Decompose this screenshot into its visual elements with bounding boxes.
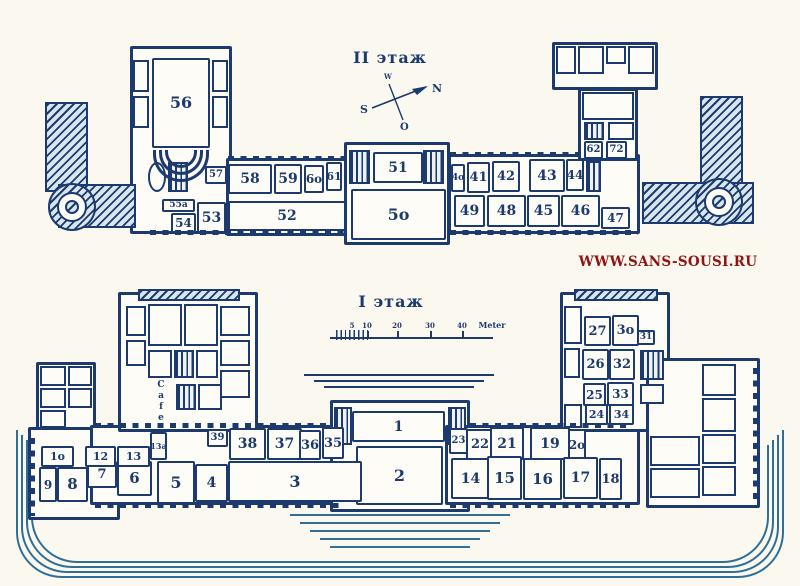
- room-2: 2: [356, 446, 443, 505]
- room-47: 47: [601, 207, 630, 229]
- upper-left-tower-cell: [133, 60, 149, 92]
- lower-right-tower-parapet: [574, 289, 658, 301]
- room-31: 31: [637, 330, 655, 345]
- lower-west-wing-cell: [68, 366, 92, 386]
- room-52: 52: [228, 201, 346, 231]
- lower-right-pavilion-cell: [650, 436, 700, 466]
- lower-right-pavilion-cell: [650, 468, 700, 498]
- room-49: 49: [454, 195, 485, 227]
- lower-west-facade-ticks: [30, 438, 35, 516]
- room-5: 5: [157, 461, 195, 504]
- lower-right-tower-cell: [640, 384, 664, 404]
- room-15: 15: [487, 456, 522, 500]
- room-26: 26: [582, 349, 609, 380]
- upper-left-tower-cell: [212, 60, 228, 92]
- lower-south-facade-ticks: [450, 503, 630, 508]
- room-43: 43: [529, 159, 565, 192]
- watermark: WWW.SANS-SOUSI.RU: [579, 254, 758, 270]
- upper-right-tower-cell: [606, 46, 626, 64]
- room-14: 14: [451, 458, 490, 499]
- court-step: [324, 386, 474, 388]
- lower-left-tower-cell: [184, 304, 218, 346]
- upper-north-facade-ticks: [228, 156, 346, 161]
- lower-west-wing-cell: [40, 410, 66, 428]
- lower-left-tower-stair: [176, 384, 196, 410]
- upper-right-tower-stair: [584, 122, 604, 140]
- upper-center-stair-west: [349, 150, 370, 184]
- label-scale-20: 20: [392, 321, 402, 330]
- room-51: 51: [373, 152, 423, 183]
- room-53: 53: [197, 202, 226, 233]
- room-32: 32: [609, 349, 635, 380]
- room-13a: 13a: [150, 432, 167, 460]
- lower-floor-title: I этаж: [358, 292, 423, 311]
- upper-floor-title: II этаж: [353, 48, 427, 67]
- lower-left-tower-cell: [126, 306, 146, 336]
- palace-floor-plan-scan: II этаж N S O W 565758: [0, 0, 800, 586]
- upper-right-tower-cell: [608, 122, 634, 140]
- grand-stair-step: [330, 546, 470, 548]
- room-55a: 55a: [162, 199, 195, 212]
- upper-left-rotunda-core: [65, 200, 79, 214]
- upper-right-tower-cell: [578, 46, 604, 74]
- upper-center-stair-east: [423, 150, 444, 184]
- room-17: 17: [563, 457, 598, 499]
- room-41: 41: [467, 162, 490, 193]
- lower-court-facade-ticks: [95, 423, 330, 428]
- upper-south-facade-ticks: [150, 230, 344, 235]
- room-59: 59: [274, 164, 302, 194]
- room-18: 18: [599, 458, 622, 500]
- scale-bar-tick: [430, 331, 432, 339]
- room-16: 16: [523, 458, 562, 500]
- scale-bar-tick: [397, 331, 399, 339]
- room-9: 9: [39, 467, 57, 502]
- compass-south-label: S: [360, 103, 368, 116]
- upper-left-tower-cell: [133, 96, 149, 128]
- room-20: 2o: [568, 429, 586, 460]
- room-3: 3: [228, 461, 362, 502]
- lower-right-pavilion-cell: [702, 398, 736, 432]
- room-72: 72: [606, 141, 627, 159]
- court-step: [314, 380, 484, 382]
- upper-right-colonnade-north-arm: [700, 96, 743, 186]
- lower-court-facade-ticks: [470, 423, 630, 428]
- scale-bar-tick: [367, 331, 369, 339]
- room-61: 61: [326, 162, 342, 191]
- room-57: 57: [205, 166, 227, 184]
- room-44: 44: [566, 159, 584, 191]
- room-10: 1o: [41, 446, 74, 467]
- room-38: 38: [229, 428, 266, 460]
- lower-west-wing-cell: [40, 388, 66, 408]
- room-19: 19: [530, 427, 570, 460]
- lower-left-tower-cell: [220, 306, 250, 336]
- room-56: 56: [152, 58, 210, 148]
- room-40: 4o: [451, 164, 465, 192]
- lower-south-facade-ticks: [95, 503, 345, 508]
- room-37: 37: [267, 428, 302, 460]
- scale-bar-tick: [462, 331, 464, 339]
- room-39: 39: [207, 429, 228, 447]
- grand-stair-step: [290, 514, 510, 516]
- upper-right-tower-cell: [556, 46, 576, 74]
- room-36: 36: [299, 430, 321, 460]
- room-60: 6o: [304, 165, 324, 193]
- lower-right-tower-stair: [640, 350, 664, 380]
- room-24: 24: [585, 404, 608, 425]
- upper-left-tower-cell: [212, 96, 228, 128]
- compass-arrow-icon: [412, 86, 428, 95]
- room-30: 3o: [612, 315, 639, 346]
- compass-west-label: W: [383, 72, 392, 81]
- room-62: 62: [584, 141, 603, 159]
- room-12: 12: [85, 446, 116, 467]
- compass-rose: N S O W: [350, 68, 450, 132]
- lower-west-wing-cell: [68, 388, 92, 408]
- label-scale-5: 5: [350, 321, 355, 330]
- compass-north-label: N: [432, 82, 442, 95]
- lower-left-tower-cell: [148, 304, 182, 346]
- lower-left-tower-cell: [198, 384, 222, 410]
- room-25: 25: [583, 383, 606, 406]
- room-45: 45: [527, 195, 560, 227]
- lower-left-tower-parapet: [138, 289, 240, 301]
- label-scale-10: 10: [362, 321, 372, 330]
- room-35: 35: [322, 427, 344, 459]
- compass-east-label: O: [400, 122, 409, 133]
- room-50: 5o: [351, 189, 446, 240]
- lower-west-wing-cell: [40, 366, 66, 386]
- room-42: 42: [492, 161, 520, 192]
- upper-right-tower-cell: [582, 92, 634, 120]
- lower-right-tower-cell: [564, 306, 582, 344]
- lower-right-pavilion-cell: [702, 466, 736, 496]
- scale-bar-minor-ticks: [336, 330, 369, 340]
- court-step: [304, 374, 494, 376]
- room-34: 34: [609, 404, 634, 425]
- lower-left-tower-cell: [196, 350, 218, 378]
- room-33: 33: [607, 382, 634, 406]
- label-scale-unit: Meter: [479, 320, 506, 330]
- grand-stair-step: [310, 530, 490, 532]
- grand-stair-step: [300, 522, 500, 524]
- lower-left-tower-cell: [148, 350, 172, 378]
- upper-left-colonnade-north-arm: [45, 102, 88, 192]
- cafe-label: Cafe: [156, 380, 166, 428]
- room-27: 27: [584, 316, 611, 346]
- upper-north-facade-ticks: [450, 152, 584, 157]
- lower-right-tower-cell: [564, 348, 580, 378]
- lower-east-facade-ticks: [753, 368, 758, 503]
- room-48: 48: [487, 195, 526, 227]
- grand-stair-step: [320, 538, 480, 540]
- label-scale-30: 30: [425, 321, 435, 330]
- room-4: 4: [195, 464, 228, 502]
- room-8: 8: [57, 467, 88, 502]
- lower-left-tower-cell: [220, 370, 250, 398]
- upper-south-facade-ticks: [450, 230, 638, 235]
- lower-left-tower-cell: [220, 340, 250, 366]
- label-scale-40: 40: [457, 321, 467, 330]
- room-58: 58: [228, 164, 272, 194]
- lower-right-pavilion-cell: [702, 434, 736, 464]
- room-13: 13: [117, 446, 150, 467]
- lower-left-tower-stair: [174, 350, 194, 378]
- lower-left-tower-cell: [126, 340, 146, 366]
- upper-right-stair: [586, 161, 601, 192]
- upper-right-rotunda-core: [712, 195, 726, 209]
- upper-right-tower-cell: [628, 46, 654, 74]
- room-46: 46: [561, 195, 600, 227]
- room-1: 1: [352, 411, 445, 442]
- lower-right-pavilion-cell: [702, 364, 736, 396]
